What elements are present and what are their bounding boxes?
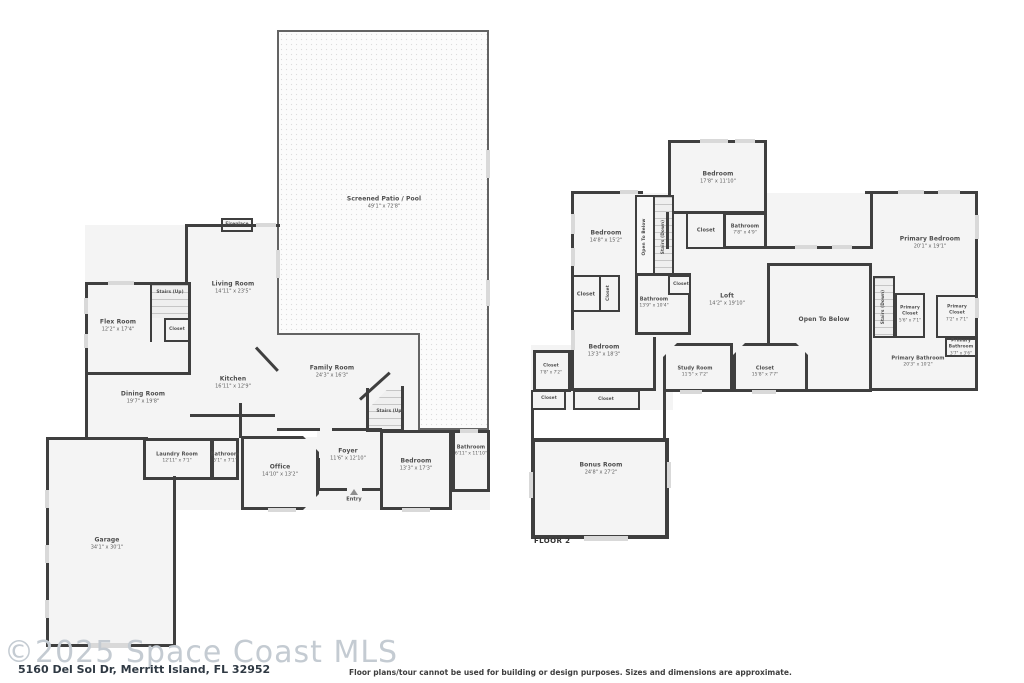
window xyxy=(84,334,88,348)
label-bedroom-left: Bedroom14'8" x 15'2" xyxy=(590,230,623,245)
patio-wall xyxy=(277,333,420,335)
room-dims: 20'1" x 19'1" xyxy=(900,244,961,251)
window xyxy=(700,139,728,143)
label-screened-patio: Screened Patio / Pool49'1" x 72'8" xyxy=(347,196,421,211)
window xyxy=(402,508,430,512)
label-closet: Closet xyxy=(673,282,689,288)
window xyxy=(486,280,490,306)
room-name: Stairs (Up) xyxy=(156,290,183,296)
label-bonus-room: Bonus Room24'8" x 27'2" xyxy=(579,462,622,477)
patio-wall xyxy=(277,30,489,32)
label-stairs-down-2: Stairs (Down) xyxy=(881,290,887,324)
label-bathroom: Bathroom7'8" x 4'9" xyxy=(731,224,759,237)
room-dims: 24'8" x 27'2" xyxy=(579,470,622,477)
room-dims: 24'3" x 16'3" xyxy=(310,373,354,380)
floorplan-canvas: Screened Patio / Pool49'1" x 72'8" Firep… xyxy=(0,0,1024,683)
room-name: Bathroom xyxy=(211,452,239,459)
label-closet-f: Closet7'8" x 7'2" xyxy=(540,363,562,374)
window xyxy=(45,600,49,618)
window xyxy=(45,490,49,508)
label-bedroom-mid: Bedroom13'3" x 18'3" xyxy=(588,344,621,359)
window xyxy=(460,429,478,433)
room-name: Closet xyxy=(673,282,689,288)
wall xyxy=(653,337,656,390)
room-name: Study Room xyxy=(677,366,712,373)
room-dims: 7'2" x 7'1" xyxy=(940,316,974,322)
patio-wall xyxy=(277,30,279,335)
room-name: Stairs (Down) xyxy=(661,220,667,254)
label-primary-bathroom-small: Primary Bathroom3'7" x 3'6" xyxy=(944,338,978,355)
room-dims: 12'11" x 7'1" xyxy=(156,458,198,464)
room-dims: 16'11" x 12'9" xyxy=(215,384,251,391)
window xyxy=(45,545,49,563)
room-name: Closet xyxy=(606,285,612,301)
room-name: Bedroom xyxy=(700,171,736,179)
window xyxy=(795,245,817,249)
wall xyxy=(571,388,656,391)
window xyxy=(571,214,575,234)
room-name: Kitchen xyxy=(215,376,251,384)
room-dims: 11'5" x 7'2" xyxy=(677,372,712,378)
wall xyxy=(46,437,148,440)
window xyxy=(256,223,276,227)
bonus-room-outline xyxy=(531,438,669,539)
room-dims: 19'7" x 19'8" xyxy=(121,399,165,406)
wall xyxy=(85,282,188,285)
label-closet: Closet xyxy=(697,228,715,235)
patio-wall xyxy=(487,30,489,430)
label-family-room: Family Room24'3" x 16'3" xyxy=(310,365,354,380)
room-name: Primary Bathroom xyxy=(944,338,978,350)
label-open-to-below-strip: Open To Below xyxy=(642,219,648,256)
label-kitchen: Kitchen16'11" x 12'9" xyxy=(215,376,251,391)
room-name: Closet xyxy=(541,396,557,402)
wall xyxy=(85,282,88,375)
room-dims: 7'8" x 4'9" xyxy=(731,230,759,236)
room-name: Primary Bathroom xyxy=(891,356,944,363)
window xyxy=(832,245,852,249)
room-dims: 5'1" x 7'1" xyxy=(211,458,239,464)
room-dims: 13'9" x 10'4" xyxy=(639,303,668,309)
label-laundry-room: Laundry Room12'11" x 7'1" xyxy=(156,452,198,465)
window xyxy=(975,215,979,239)
floor2-title: FLOOR 2 xyxy=(534,537,570,545)
room-name: Stairs (Down) xyxy=(881,290,887,324)
room-name: Family Room xyxy=(310,365,354,373)
room-dims: 3'7" x 3'6" xyxy=(944,350,978,356)
window xyxy=(667,462,671,488)
room-name: Bedroom xyxy=(400,458,433,466)
window xyxy=(571,248,575,266)
label-bathroom-2: Bathroom13'9" x 10'4" xyxy=(639,297,668,310)
label-closet: Closet xyxy=(577,292,595,299)
room-name: Closet xyxy=(752,366,778,373)
label-closet-h: Closet xyxy=(598,397,614,403)
wall xyxy=(317,488,347,491)
window xyxy=(486,150,490,178)
disclaimer-text: Floor plans/tour cannot be used for buil… xyxy=(349,668,792,677)
room-name: Laundry Room xyxy=(156,452,198,459)
wall xyxy=(317,458,320,491)
room-name: Loft xyxy=(709,293,745,301)
window xyxy=(276,250,280,278)
room-name: Bedroom xyxy=(590,230,623,238)
window xyxy=(84,298,88,314)
window xyxy=(898,190,924,194)
label-primary-bathroom: Primary Bathroom20'3" x 10'2" xyxy=(891,356,944,369)
wall xyxy=(366,429,404,432)
room-name: Closet xyxy=(169,327,185,333)
label-closet-vertical: Closet xyxy=(606,285,612,301)
window xyxy=(584,536,628,541)
label-closet-large: Closet15'8" x 7'7" xyxy=(752,366,778,379)
wall xyxy=(173,476,176,647)
window xyxy=(571,330,575,350)
label-bedroom: Bedroom13'3" x 17'3" xyxy=(400,458,433,473)
wall xyxy=(870,388,978,391)
room-name: Closet xyxy=(697,228,715,235)
room-dims: 5'6" x 7'1" xyxy=(893,317,927,323)
room-name: Bathroom xyxy=(455,445,487,452)
room-name: Open To Below xyxy=(799,316,850,324)
room-name: Fireplace xyxy=(225,222,248,228)
room-name: Stairs (Up) xyxy=(376,409,403,415)
label-stairs-up: Stairs (Up) xyxy=(156,290,183,296)
room-name: Bedroom xyxy=(588,344,621,352)
room-dims: 14'11" x 23'5" xyxy=(212,289,255,296)
entry-marker-icon xyxy=(350,489,358,495)
room-dims: 13'3" x 18'3" xyxy=(588,352,621,359)
label-stairs-up-2: Stairs (Up) xyxy=(376,409,403,415)
room-name: Primary Bedroom xyxy=(900,236,961,244)
room-name: Dining Room xyxy=(121,391,165,399)
room-dims: 13'3" x 17'3" xyxy=(400,466,433,473)
room-dims: 49'1" x 72'8" xyxy=(347,204,421,211)
bathroom-outline xyxy=(452,430,490,492)
room-dims: 12'2" x 17'4" xyxy=(100,327,136,334)
window xyxy=(529,472,533,498)
label-office: Office14'10" x 13'2" xyxy=(262,464,298,479)
room-dims: 34'1" x 30'1" xyxy=(91,545,124,552)
window xyxy=(938,190,960,194)
wall xyxy=(85,372,88,440)
label-garage: Garage34'1" x 30'1" xyxy=(91,537,124,552)
label-study-room: Study Room11'5" x 7'2" xyxy=(677,366,712,379)
room-name: Screened Patio / Pool xyxy=(347,196,421,204)
room-name: Entry xyxy=(346,497,362,504)
room-dims: 17'8" x 11'10" xyxy=(700,179,736,186)
window xyxy=(620,190,638,194)
window xyxy=(268,508,296,512)
room-name: Closet xyxy=(540,363,562,369)
label-fireplace: Fireplace xyxy=(225,222,248,228)
window xyxy=(108,281,134,285)
label-living-room: Living Room14'11" x 23'5" xyxy=(212,281,255,296)
label-entry: Entry xyxy=(346,497,362,504)
room-name: Foyer xyxy=(330,448,366,456)
window xyxy=(680,390,702,394)
patio-wall xyxy=(418,333,420,430)
wall xyxy=(185,224,188,285)
room-dims: 14'8" x 15'2" xyxy=(590,238,623,245)
wall xyxy=(663,390,666,442)
room-dims: 7'8" x 7'2" xyxy=(540,369,562,375)
room-name: Primary Closet xyxy=(940,304,974,316)
wall xyxy=(531,408,534,442)
label-primary-closet-1: Primary Closet5'6" x 7'1" xyxy=(893,305,927,322)
label-primary-bedroom: Primary Bedroom20'1" x 19'1" xyxy=(900,236,961,251)
wall xyxy=(85,372,190,375)
label-open-to-below: Open To Below xyxy=(799,316,850,324)
wall xyxy=(362,488,382,491)
label-closet-g: Closet xyxy=(541,396,557,402)
label-bathroom-2: Bathroom6'11" x 11'10" xyxy=(455,445,487,458)
label-dining-room: Dining Room19'7" x 19'8" xyxy=(121,391,165,406)
wall xyxy=(870,193,873,249)
patio-wall xyxy=(418,428,489,430)
wall xyxy=(277,428,320,431)
room-dims: 14'10" x 13'2" xyxy=(262,472,298,479)
room-name: Bathroom xyxy=(639,297,668,304)
room-name: Closet xyxy=(577,292,595,299)
label-stairs-down-strip: Stairs (Down) xyxy=(661,220,667,254)
room-name: Garage xyxy=(91,537,124,545)
window xyxy=(975,298,979,318)
window xyxy=(735,139,755,143)
room-name: Living Room xyxy=(212,281,255,289)
wall xyxy=(150,282,152,342)
room-name: Closet xyxy=(598,397,614,403)
wall xyxy=(239,403,242,438)
room-dims: 11'6" x 12'10" xyxy=(330,456,366,463)
window xyxy=(752,390,776,394)
label-bedroom-top: Bedroom17'8" x 11'10" xyxy=(700,171,736,186)
room-name: Office xyxy=(262,464,298,472)
label-flex-room: Flex Room12'2" x 17'4" xyxy=(100,319,136,334)
room-dims: 14'2" x 19'10" xyxy=(709,301,745,308)
property-address: 5160 Del Sol Dr, Merritt Island, FL 3295… xyxy=(18,663,270,676)
label-bathroom: Bathroom5'1" x 7'1" xyxy=(211,452,239,465)
label-closet: Closet xyxy=(169,327,185,333)
label-primary-closet-2: Primary Closet7'2" x 7'1" xyxy=(940,304,974,321)
room-name: Primary Closet xyxy=(893,305,927,317)
room-name: Bathroom xyxy=(731,224,759,231)
label-loft: Loft14'2" x 19'10" xyxy=(709,293,745,308)
room-dims: 15'8" x 7'7" xyxy=(752,372,778,378)
wall xyxy=(188,282,191,375)
label-foyer: Foyer11'6" x 12'10" xyxy=(330,448,366,463)
room-dims: 20'3" x 10'2" xyxy=(891,362,944,368)
room-name: Bonus Room xyxy=(579,462,622,470)
wall xyxy=(190,414,275,417)
room-name: Open To Below xyxy=(642,219,648,256)
room-name: Flex Room xyxy=(100,319,136,327)
wall xyxy=(767,246,872,249)
room-dims: 6'11" x 11'10" xyxy=(455,451,487,457)
